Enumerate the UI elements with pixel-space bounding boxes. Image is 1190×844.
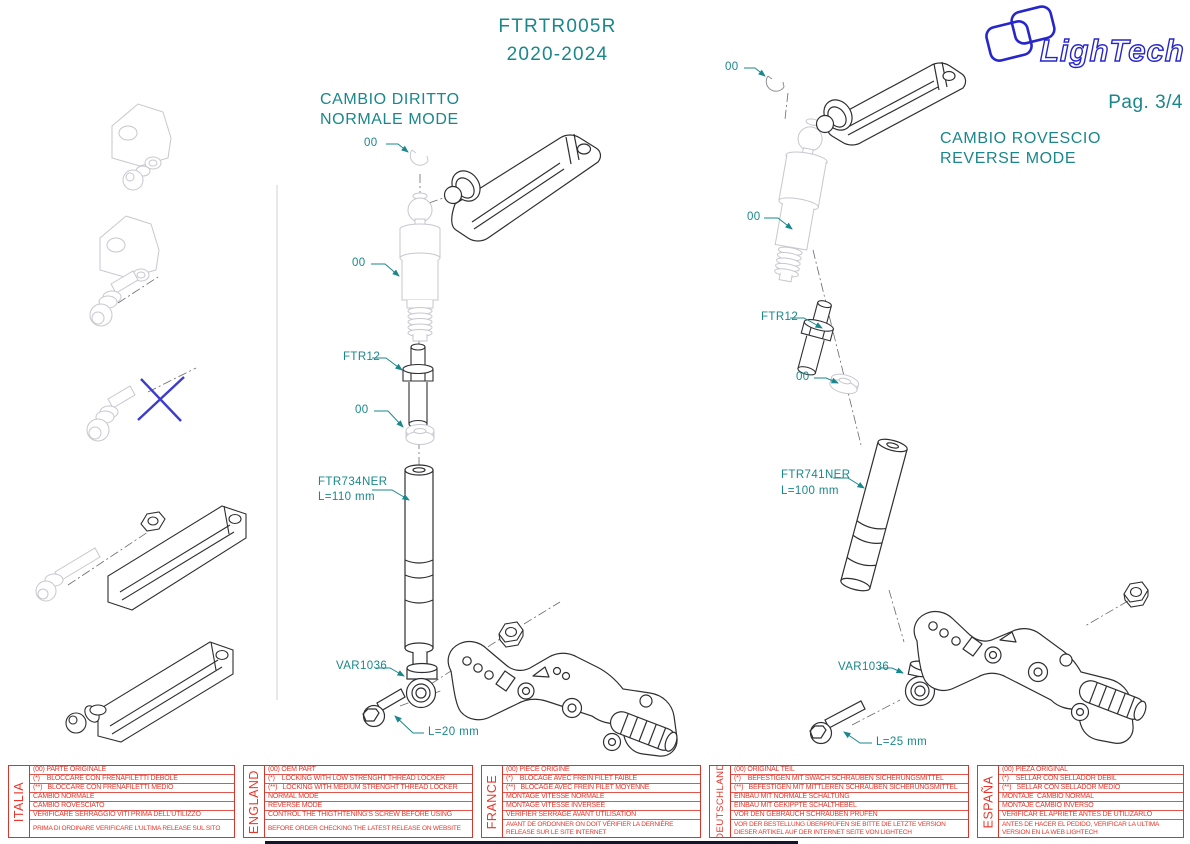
lang-block-england: ENGLAND (00) OEM PART (*) LOCKING WITH L… — [243, 765, 473, 838]
label-left-screw: L=20 mm — [428, 726, 479, 738]
left-screw-drawing — [363, 689, 405, 727]
table-row: EINBAU MIT GEKIPPTE SCHALTHEBEL — [731, 802, 968, 811]
left-shift-pedal-drawing — [448, 642, 679, 757]
label-right-washer: 00 — [796, 371, 810, 383]
left-pin-ftr12-drawing — [403, 344, 433, 428]
left-lever-arm-drawing — [445, 134, 601, 241]
table-row: NORMAL MODE — [265, 793, 472, 802]
blue-cross-icon — [138, 377, 184, 421]
label-left-pin: FTR12 — [343, 351, 380, 363]
lang-block-deutschland: DEUTSCHLAND (00) ORIGINAL TEIL (*) BEFES… — [709, 765, 969, 838]
table-row: (**) BLOCAGE AVEC FREIN FILET MOYENNE — [503, 784, 700, 793]
table-footer-note: AVANT DE ORDONNER ON DOIT VÉRIFIER LA DE… — [503, 820, 700, 837]
multilanguage-notes-table: ITALIA (00) PARTE ORIGINALE (*) BLOCCARE… — [8, 765, 1184, 838]
lightech-logo: LighTech — [985, 5, 1185, 68]
table-row: CONTROL THE THIGTHTENING'S SCREW BEFORE … — [265, 811, 472, 820]
left-rod-end-var1036-drawing — [407, 652, 438, 708]
label-right-rod-end: VAR1036 — [838, 661, 889, 673]
exploded-view-drawing: LighTech — [0, 0, 1190, 765]
label-left-rod-code: FTR734NER — [318, 476, 387, 488]
label-right-rod-length: L=100 mm — [781, 485, 839, 497]
right-assembly-title-line1: CAMBIO ROVESCIO — [940, 129, 1101, 149]
right-assembly-title-line2: REVERSE MODE — [940, 149, 1076, 169]
table-footer-note: ANTES DE HACER EL PEDIDO, VERIFICAR LA U… — [999, 820, 1183, 837]
table-row: (*) LOCKING WITH LOW STRENGHT THREAD LOC… — [265, 775, 472, 784]
table-footer-note: VOR DER BESTELLUNG ÜBERPRÜFEN SIE BITTE … — [731, 820, 968, 837]
table-row: CAMBIO NORMALE — [30, 793, 234, 802]
table-row: (00) ORIGINAL TEIL — [731, 766, 968, 775]
label-right-rod-code: FTR741NER — [781, 469, 850, 481]
faded-bracket-exploded-drawing — [90, 216, 159, 326]
left-rod-ftr734ner-drawing — [405, 465, 433, 653]
lang-label-france: FRANCE — [482, 766, 503, 837]
label-left-rod-end: VAR1036 — [336, 660, 387, 672]
table-row: VOR DEN GEBRAUCH SCHRAUBEN PRÜFEN — [731, 811, 968, 820]
right-clip-drawing — [766, 76, 784, 91]
page-number: Pag. 3/4 — [1095, 92, 1183, 114]
table-row: VERIFICARE SERRAGGIO VITI PRIMA DELL'UTI… — [30, 811, 234, 820]
lang-block-espana: ESPAÑA (00) PIEZA ORIGINAL (*) SELLAR CO… — [977, 765, 1184, 838]
table-row: VERIFICAR EL APRIETE ANTES DE UTILIZARLO — [999, 811, 1183, 820]
left-washer-drawing — [406, 425, 434, 445]
table-row: (**) LOCKING WITH MEDIUM STRENGHT THREAD… — [265, 784, 472, 793]
table-row: (**) BLOCCARE CON FRENAFILETTI MEDIO — [30, 784, 234, 793]
right-actuator-drawing — [764, 116, 834, 285]
faded-bolt-crossed-out-drawing — [87, 386, 135, 441]
lang-block-france: FRANCE (00) PIECE ORIGINE (*) BLOCAGE AV… — [481, 765, 701, 838]
left-assembly-title-line2: NORMALE MODE — [320, 110, 459, 130]
lang-label-italia: ITALIA — [9, 766, 30, 837]
right-pin-ftr12-drawing — [791, 297, 840, 378]
right-shift-pedal-drawing — [914, 612, 1148, 744]
label-left-rod-length: L=110 mm — [318, 491, 375, 503]
table-row: MONTAGE VITESSE NORMALE — [503, 793, 700, 802]
table-row: (*) BLOCCARE CON FRENAFILETTI DEBOLE — [30, 775, 234, 784]
table-row: CAMBIO ROVESCIATO — [30, 802, 234, 811]
lever-arm-with-nut-drawing — [108, 506, 246, 610]
table-footer-note: BEFORE ORDER CHECKING THE LATEST RELEASE… — [265, 820, 472, 837]
table-row: MONTAJE CAMBIO NORMAL — [999, 793, 1183, 802]
table-row: MONTAJE CAMBIO INVERSO — [999, 802, 1183, 811]
table-row: VERIFIER SERRAGE AVANT UTILISATION — [503, 811, 700, 820]
table-row: (**) SELLAR CON SELLADOR MEDIO — [999, 784, 1183, 793]
table-row: (00) PIEZA ORIGINAL — [999, 766, 1183, 775]
faded-bracket-assembled-drawing — [112, 104, 171, 190]
table-row: (**) BEFESTIGEN MIT MITTLEREN SCHRAUBEN … — [731, 784, 968, 793]
table-row: (00) PIECE ORIGINE — [503, 766, 700, 775]
label-right-screw: L=25 mm — [876, 736, 927, 748]
drawing-title-code: FTRTR005R — [455, 16, 660, 38]
table-row: (*) BLOCAGE AVEC FREIN FILET FAIBLE — [503, 775, 700, 784]
lever-arm-assembled-drawing — [66, 642, 233, 742]
label-left-washer: 00 — [355, 404, 369, 416]
label-left-actuator: 00 — [352, 257, 366, 269]
right-washer-drawing — [828, 372, 860, 397]
table-row: (00) PARTE ORIGINALE — [30, 766, 234, 775]
table-row: EINBAU MIT NORMALE SCHALTUNG — [731, 793, 968, 802]
left-actuator-drawing — [400, 193, 440, 341]
right-hex-nut-drawing — [1124, 582, 1148, 607]
lang-label-espana: ESPAÑA — [978, 766, 999, 837]
lightech-logo-text: LighTech — [1040, 33, 1185, 68]
logo-monogram-square-1 — [985, 19, 1034, 62]
label-right-clip: 00 — [725, 61, 739, 73]
drawing-title-years: 2020-2024 — [455, 44, 660, 66]
label-left-clip: 00 — [364, 137, 378, 149]
faded-bolt-lever-drawing — [36, 548, 100, 601]
lang-label-england: ENGLAND — [244, 766, 265, 837]
left-hex-nut-drawing — [499, 622, 523, 647]
table-row: REVERSE MODE — [265, 802, 472, 811]
technical-drawing-page: LighTech FTRTR005R 2020-2024 Pag. 3/4 CA… — [0, 0, 1190, 844]
table-footer-note: PRIMA DI ORDINARE VERIFICARE L'ULTIMA RE… — [30, 820, 234, 837]
left-clip-drawing — [410, 150, 428, 165]
right-rod-ftr741ner-drawing — [840, 437, 909, 594]
label-right-actuator: 00 — [747, 211, 761, 223]
lang-label-deutschland: DEUTSCHLAND — [710, 766, 731, 837]
lang-block-italia: ITALIA (00) PARTE ORIGINALE (*) BLOCCARE… — [8, 765, 235, 838]
table-row: (*) BEFESTIGEN MIT SWACH SCHRAUBEN SICHE… — [731, 775, 968, 784]
table-row: (00) OEM PART — [265, 766, 472, 775]
left-assembly-title-line1: CAMBIO DIRITTO — [320, 90, 460, 110]
table-row: (*) SELLAR CON SELLADOR DEBIL — [999, 775, 1183, 784]
centerlines — [68, 93, 1128, 725]
table-row: MONTAGE VITESSE INVERSEE — [503, 802, 700, 811]
label-right-pin: FTR12 — [761, 311, 798, 323]
